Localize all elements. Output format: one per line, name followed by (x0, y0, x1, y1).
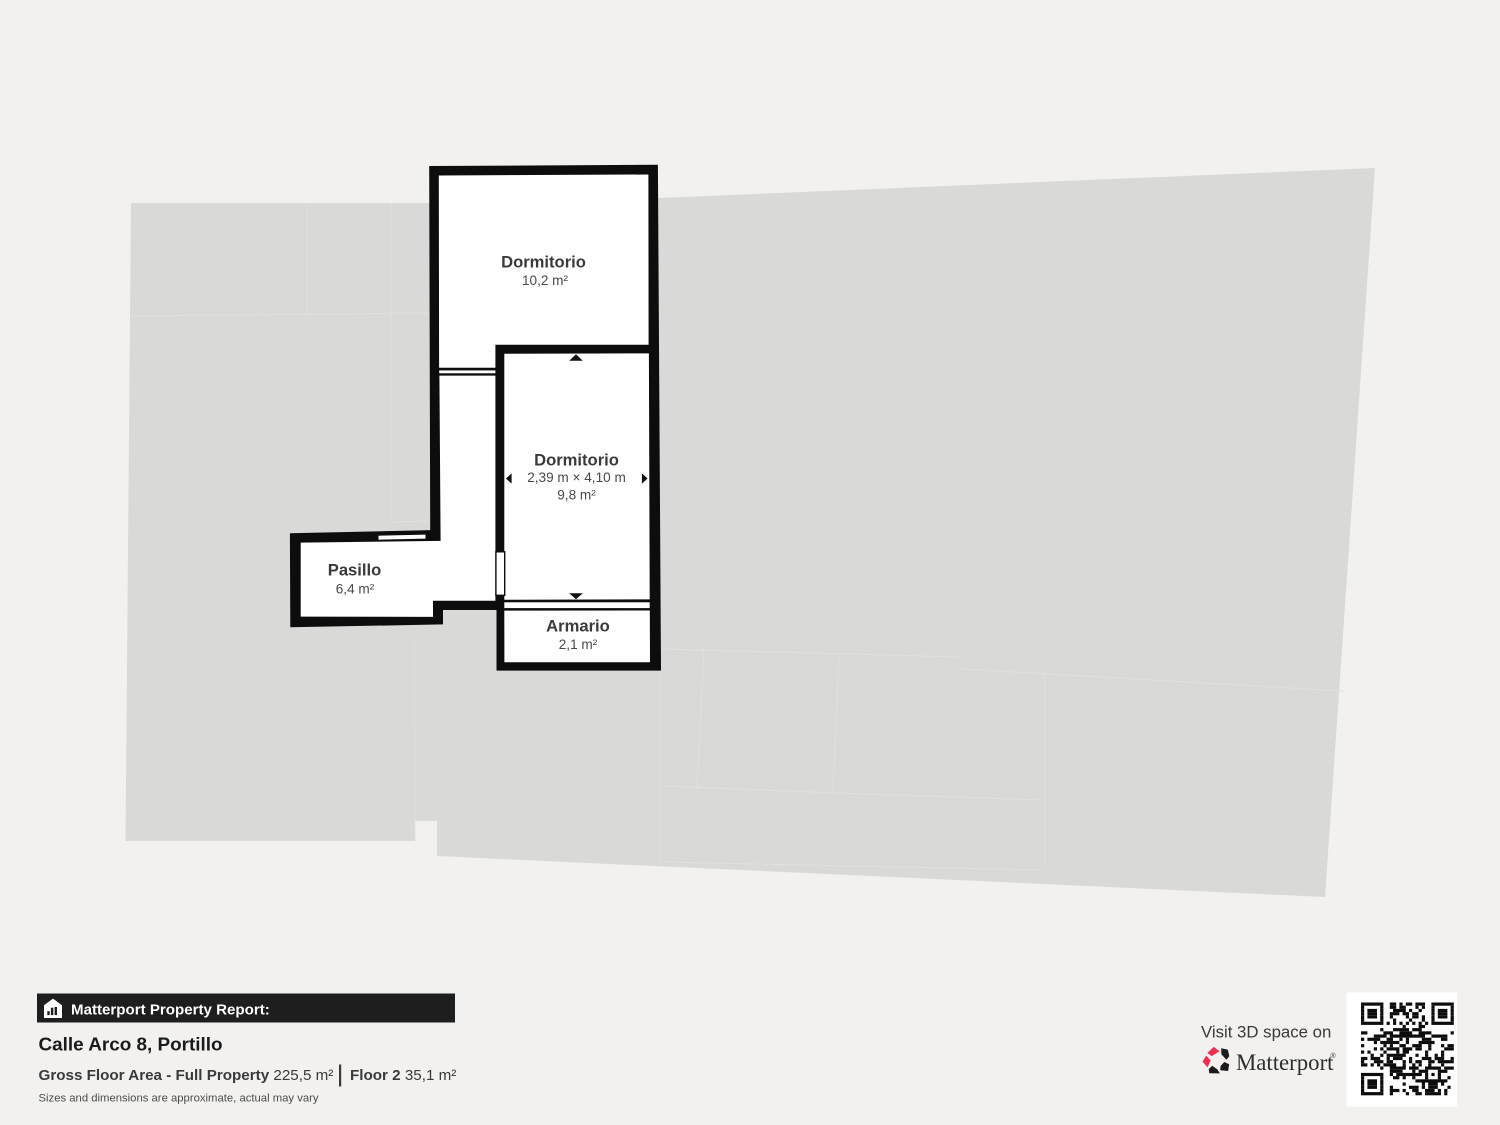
svg-text:Armario: Armario (546, 617, 610, 636)
svg-text:2,1 m²: 2,1 m² (559, 637, 598, 652)
svg-text:Matterport: Matterport (1236, 1050, 1334, 1075)
svg-text:Sizes and dimensions are appro: Sizes and dimensions are approximate, ac… (39, 1092, 319, 1104)
svg-text:Floor 2 35,1 m²: Floor 2 35,1 m² (350, 1067, 456, 1084)
svg-text:Calle Arco 8, Portillo: Calle Arco 8, Portillo (39, 1034, 223, 1055)
svg-text:Dormitorio: Dormitorio (534, 451, 619, 470)
svg-text:Dormitorio: Dormitorio (501, 252, 586, 271)
svg-text:2,39 m × 4,10 m: 2,39 m × 4,10 m (527, 470, 626, 485)
svg-text:Gross Floor Area - Full Proper: Gross Floor Area - Full Property 225,5 m… (39, 1067, 334, 1084)
svg-text:Pasillo: Pasillo (328, 560, 382, 579)
svg-text:9,8 m²: 9,8 m² (557, 488, 596, 503)
svg-text:Matterport Property Report:: Matterport Property Report: (71, 1002, 270, 1019)
svg-text:®: ® (1331, 1052, 1337, 1060)
svg-text:6,4 m²: 6,4 m² (336, 582, 375, 597)
svg-text:Visit 3D space on: Visit 3D space on (1201, 1022, 1331, 1041)
svg-text:10,2 m²: 10,2 m² (522, 273, 569, 288)
